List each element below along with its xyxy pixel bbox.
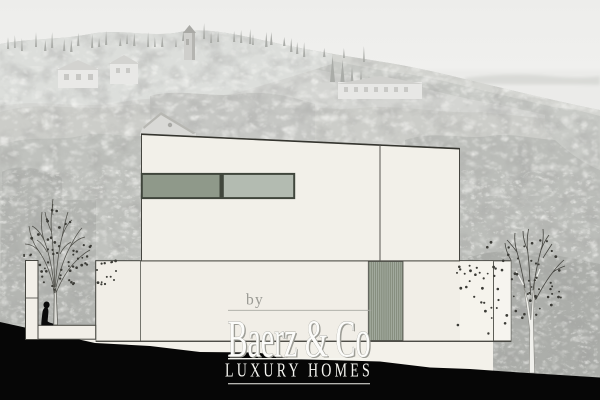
svg-text:LUXURY HOMES: LUXURY HOMES bbox=[225, 361, 373, 382]
svg-text:by: by bbox=[246, 292, 264, 309]
